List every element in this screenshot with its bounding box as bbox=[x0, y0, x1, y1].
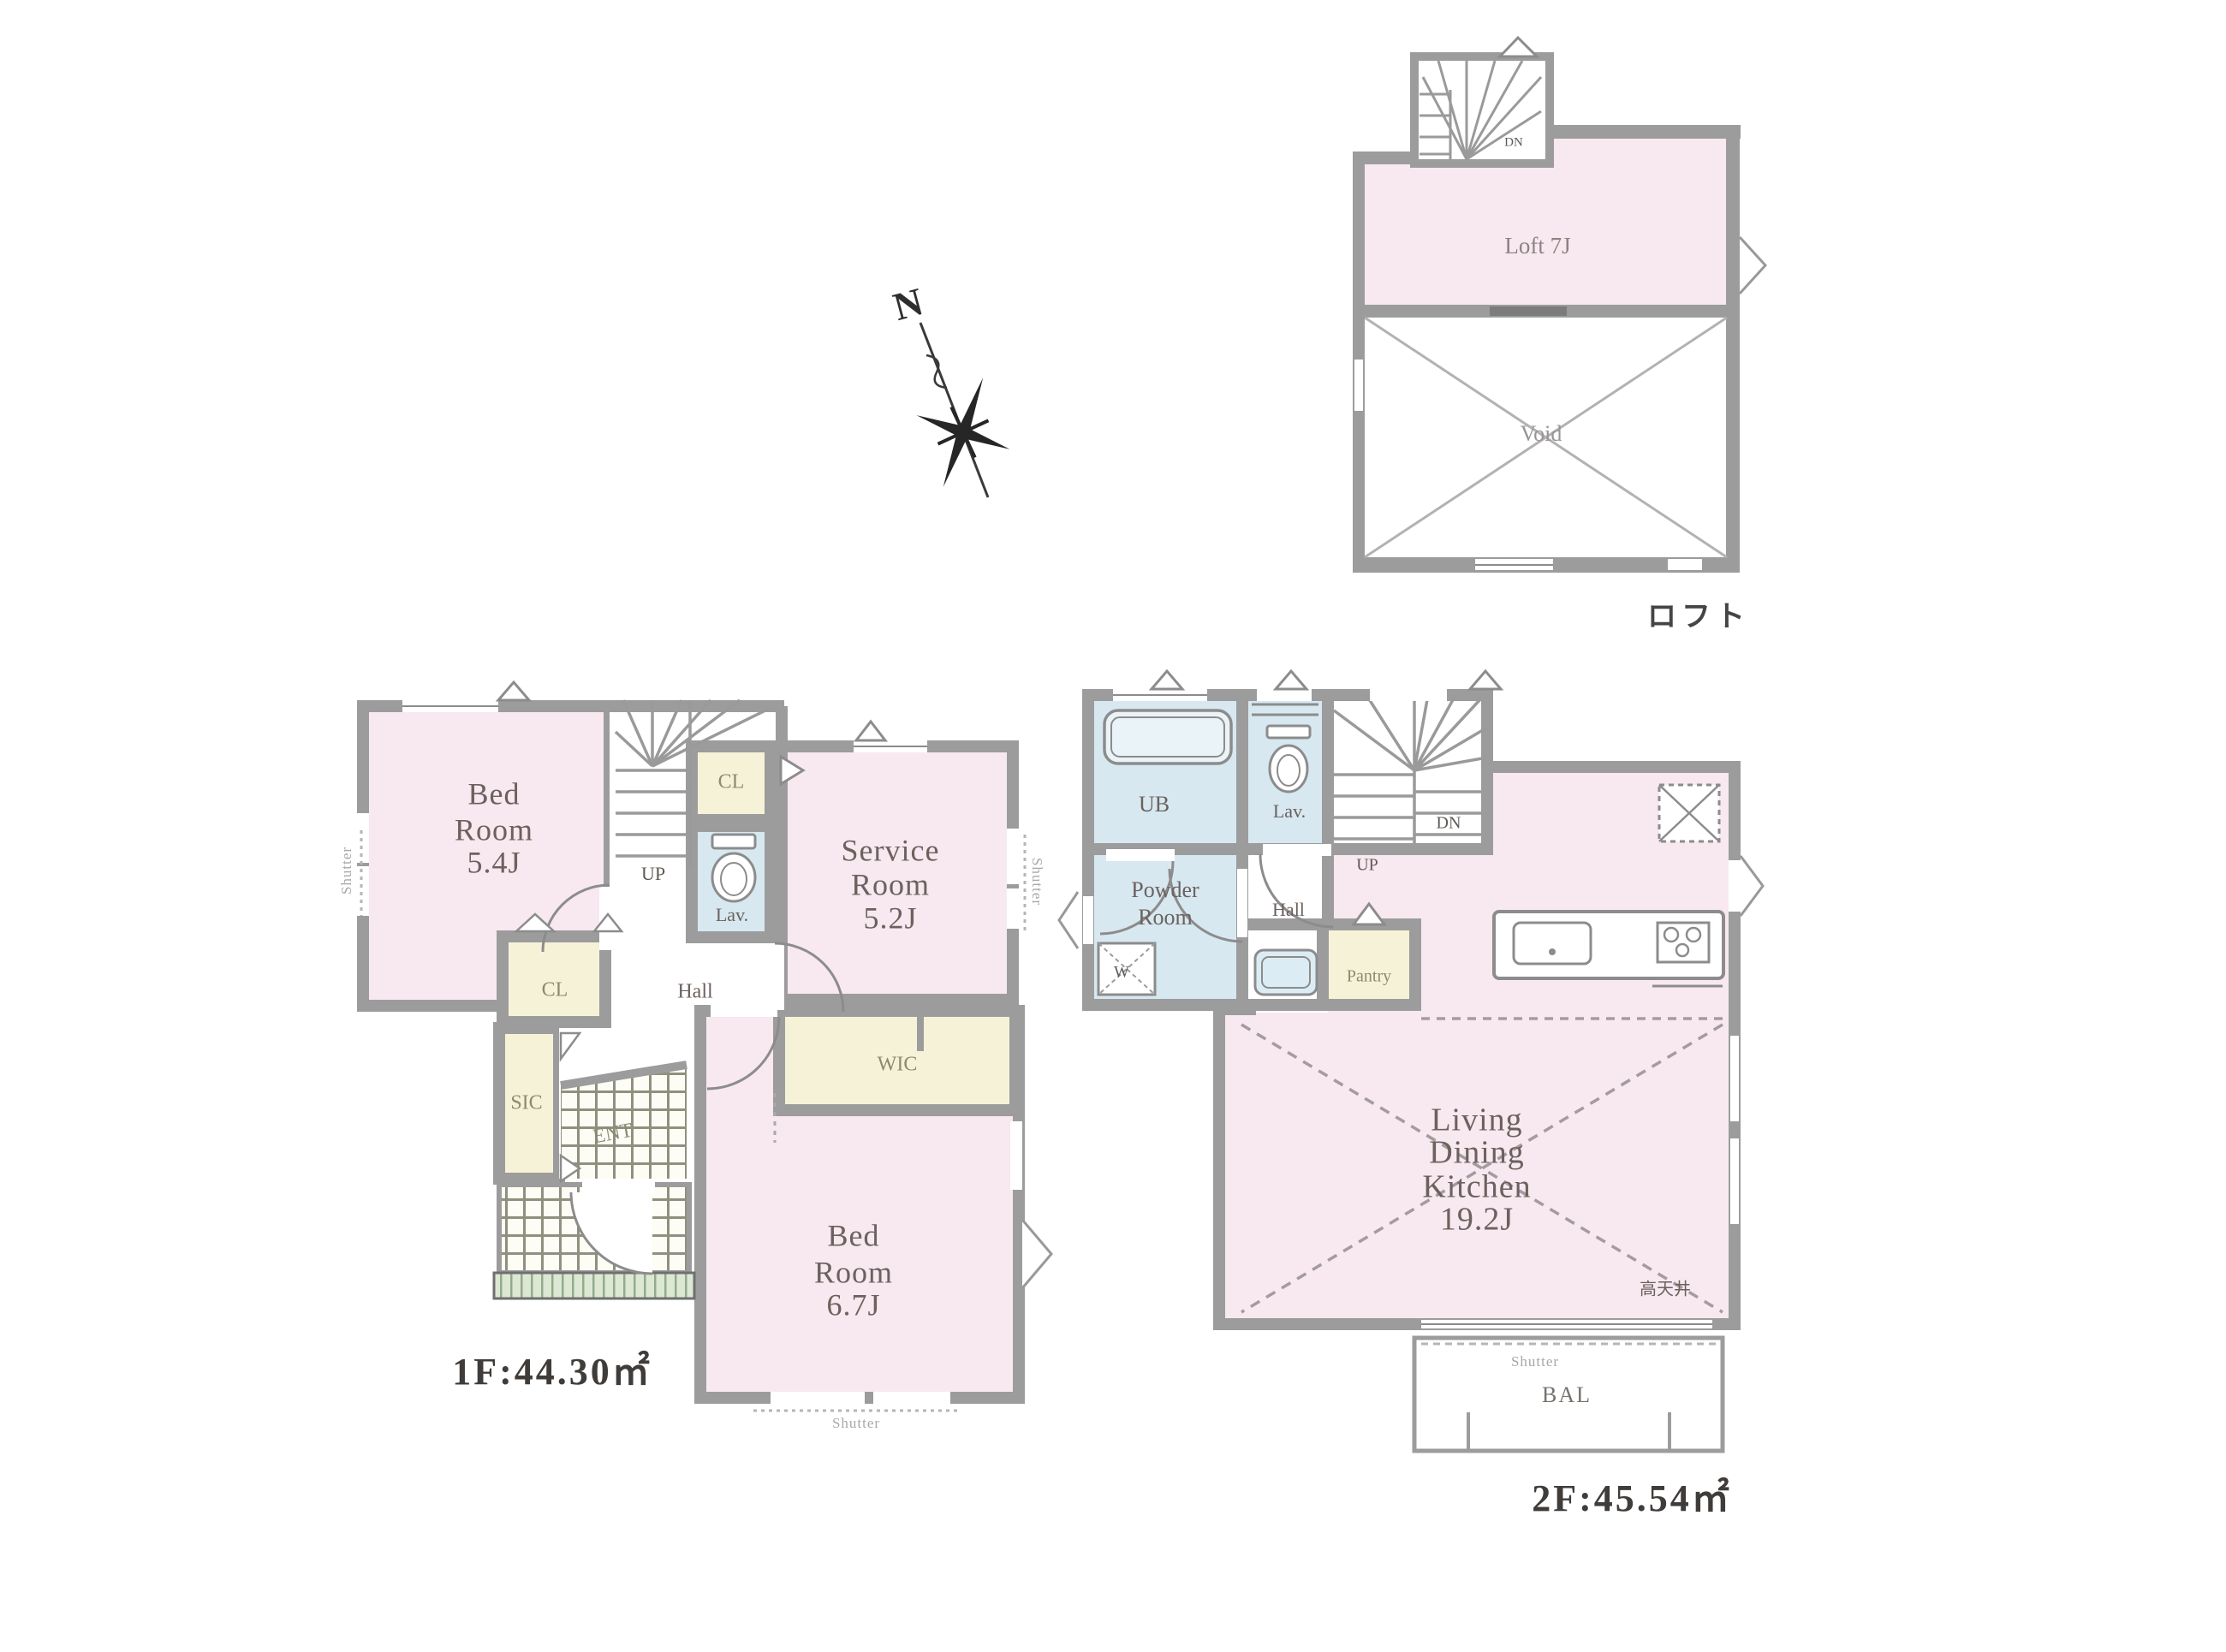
vent-triangle-icon bbox=[1152, 671, 1182, 689]
second-floor-plan: UB Lav. DN UP Powder Room W Hall Pantry … bbox=[1049, 655, 1798, 1532]
loft-stairs: DN bbox=[1414, 38, 1550, 163]
bedroom1-label-line1: Bed bbox=[468, 776, 521, 811]
f2-area-label: 2F:45.54㎡ bbox=[1532, 1477, 1732, 1519]
service-room-label-line2: Room bbox=[851, 867, 930, 901]
porch-step bbox=[494, 1273, 694, 1298]
hall-label: Hall bbox=[677, 981, 713, 1003]
vent-triangle-icon bbox=[856, 722, 885, 740]
toilet-icon bbox=[712, 835, 755, 901]
shutter-balcony-label: Shutter bbox=[1511, 1353, 1559, 1370]
sic-label: SIC bbox=[510, 1092, 542, 1114]
vent-triangle-icon bbox=[1470, 671, 1501, 689]
compass-star bbox=[896, 360, 1030, 503]
pantry-label: Pantry bbox=[1347, 967, 1391, 986]
shutter-bottom-label: Shutter bbox=[832, 1415, 880, 1431]
skylight-icon bbox=[1659, 785, 1719, 841]
closet-top-label: CL bbox=[718, 771, 745, 793]
high-ceiling-label: 高天井 bbox=[1640, 1279, 1691, 1299]
f1-area-label: 1F:44.30㎡ bbox=[452, 1350, 652, 1393]
kitchen-counter bbox=[1494, 912, 1723, 986]
loft-void-label: Void bbox=[1521, 421, 1562, 446]
closet-mid-label: CL bbox=[542, 979, 568, 1001]
stairs-up-label: UP bbox=[641, 863, 665, 884]
washbasin-icon bbox=[1255, 950, 1317, 995]
stairs-down-label: DN bbox=[1437, 814, 1461, 833]
room-pantry bbox=[1323, 924, 1415, 1005]
shutter-right-label: Shutter bbox=[1029, 858, 1045, 906]
loft-stairs-label: DN bbox=[1504, 135, 1523, 149]
loft-plan: DN Loft 7J Void ロフト bbox=[1318, 26, 1798, 651]
service-room-label-line3: 5.2J bbox=[863, 900, 917, 935]
loft-room-label: Loft 7J bbox=[1504, 233, 1570, 258]
ldk-label-line1: Living bbox=[1431, 1102, 1522, 1138]
wic-label: WIC bbox=[878, 1054, 918, 1076]
first-floor-plan: Bed Room 5.4J Service Room 5.2J Bed Room… bbox=[325, 659, 1079, 1455]
powder-room-label-line1: Powder bbox=[1131, 877, 1199, 902]
hall2-label: Hall bbox=[1272, 899, 1305, 920]
powder-room-label-line2: Room bbox=[1138, 905, 1193, 930]
balcony-label: BAL bbox=[1542, 1382, 1592, 1407]
sink-icon bbox=[1514, 923, 1591, 964]
bedroom2-label-line1: Bed bbox=[828, 1218, 880, 1252]
ldk-label-line2: Dining bbox=[1429, 1135, 1525, 1171]
ldk-label-line4: 19.2J bbox=[1440, 1202, 1514, 1238]
bay-window-icon bbox=[1059, 892, 1078, 948]
ldk-label-line3: Kitchen bbox=[1422, 1169, 1531, 1205]
service-room-label-line1: Service bbox=[842, 833, 940, 867]
compass-icon: N bbox=[848, 270, 1036, 526]
bay-window-icon bbox=[1022, 1220, 1051, 1288]
bedroom2-label-line2: Room bbox=[814, 1255, 893, 1289]
vent-triangle-icon bbox=[1276, 671, 1306, 689]
vent-triangle-icon bbox=[498, 682, 529, 700]
bay-window-icon bbox=[1740, 237, 1765, 294]
bay-window-icon bbox=[1741, 856, 1763, 916]
bedroom2-label-line3: 6.7J bbox=[826, 1287, 880, 1322]
loft-title: ロフト bbox=[1647, 600, 1750, 634]
loft-rooms bbox=[1365, 139, 1727, 557]
compass-north-label: N bbox=[889, 279, 927, 329]
bathtub-icon bbox=[1104, 710, 1231, 764]
unit-bath-label: UB bbox=[1139, 792, 1170, 817]
bedroom1-label-line2: Room bbox=[455, 812, 533, 847]
shutter-left-label: Shutter bbox=[338, 847, 354, 894]
washer-label: W bbox=[1114, 963, 1129, 981]
vent-triangle-icon bbox=[1500, 38, 1537, 56]
bedroom1-label-line3: 5.4J bbox=[467, 845, 521, 879]
stairs-up2-label: UP bbox=[1356, 856, 1378, 875]
floorplan-canvas: N bbox=[0, 0, 2226, 1652]
lavatory-label: Lav. bbox=[716, 904, 748, 925]
lavatory2-label: Lav. bbox=[1273, 800, 1306, 822]
